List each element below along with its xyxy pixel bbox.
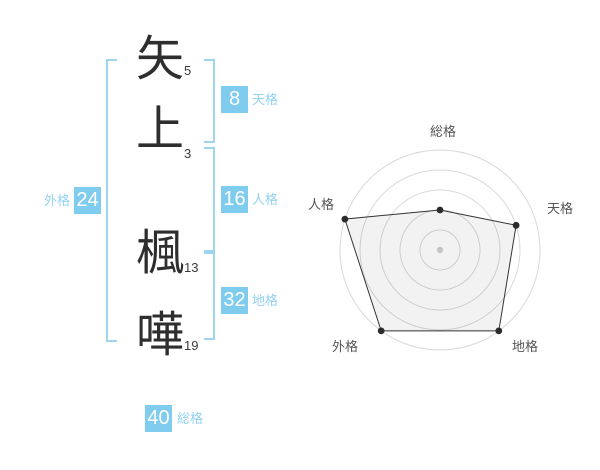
name-char-2: 上 [134,106,186,154]
chikaku-value-badge: 32 [221,287,248,314]
name-char-4: 嘩 [134,312,186,360]
radar-series [342,207,520,335]
tenkaku-value-badge: 8 [221,86,248,113]
chikaku-label: 地格 [252,294,278,308]
jinkaku-bracket [204,147,215,252]
name-char-3: 楓 [134,230,186,278]
jinkaku-label: 人格 [252,193,278,207]
gaikaku-label: 外格 [36,194,70,208]
radar-center-dot [437,247,443,253]
gaikaku-bracket [106,59,117,342]
soukaku-value-badge: 40 [145,405,172,432]
radar-vertex-dot [513,222,520,229]
name-char-1: 矢 [134,36,186,84]
gaikaku-value-badge: 24 [74,187,101,214]
radar-axis-label-jinkaku: 人格 [308,197,334,212]
radar-axis-label-tenkaku: 天格 [547,201,573,216]
radar-chart: 総格 天格 地格 外格 人格 [295,105,595,385]
jinkaku-value-badge: 16 [221,186,248,213]
radar-axis-label-chikaku: 地格 [512,339,538,354]
radar-vertex-dot [495,328,502,335]
soukaku-label: 総格 [177,412,203,426]
radar-vertex-dot [437,207,444,214]
radar-axis-label-gaikaku: 外格 [332,339,358,354]
radar-vertex-dot [378,328,385,335]
radar-polygon [345,210,516,331]
radar-vertex-dot [342,216,349,223]
stroke-count-4: 19 [184,338,210,354]
radar-axis-label-soukaku: 総格 [430,124,456,139]
chikaku-bracket [204,252,215,340]
tenkaku-label: 天格 [252,93,278,107]
tenkaku-bracket [204,59,215,143]
